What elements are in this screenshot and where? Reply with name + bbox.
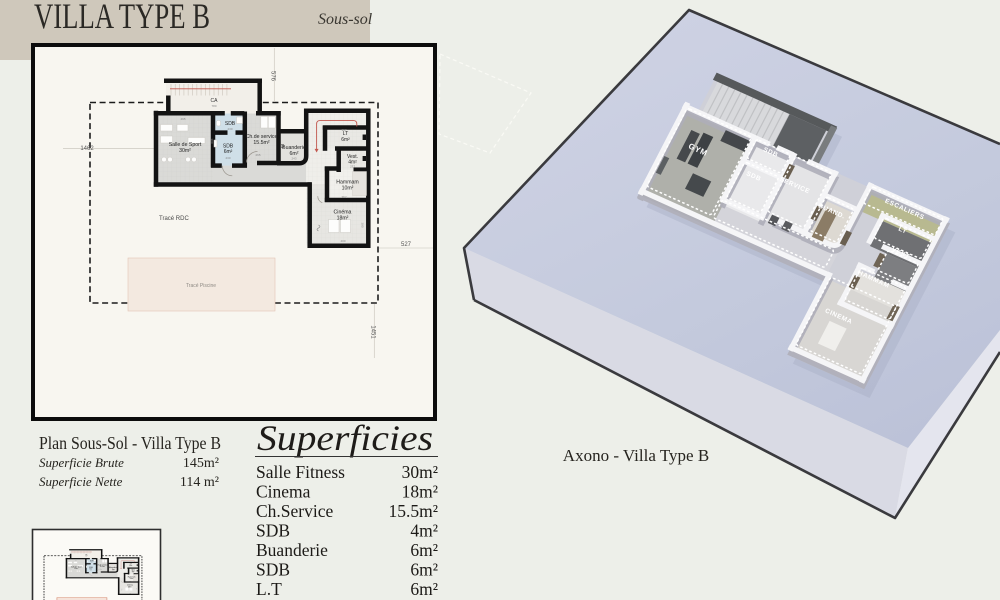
svg-text:VILLA TYPE B: VILLA TYPE B (34, 0, 210, 36)
svg-text:527: 527 (401, 242, 412, 248)
svg-text:400: 400 (340, 239, 345, 243)
svg-text:Superficies: Superficies (257, 418, 433, 458)
svg-text:1451: 1451 (370, 325, 376, 339)
svg-text:18m²: 18m² (402, 482, 438, 502)
svg-text:6m²: 6m² (341, 137, 350, 143)
svg-text:362: 362 (341, 195, 346, 199)
svg-text:SDB: SDB (256, 521, 290, 541)
svg-text:6m²: 6m² (410, 540, 438, 560)
svg-text:237: 237 (350, 164, 355, 168)
svg-text:15.5m²: 15.5m² (253, 140, 269, 146)
svg-text:Tracé Piscine: Tracé Piscine (186, 283, 216, 289)
svg-text:15.5m²: 15.5m² (389, 501, 438, 521)
svg-text:576: 576 (270, 71, 276, 82)
svg-text:114 m²: 114 m² (180, 475, 219, 490)
svg-text:397: 397 (341, 128, 346, 132)
svg-text:4m²: 4m² (410, 521, 438, 541)
svg-text:10m²: 10m² (342, 186, 354, 192)
svg-text:300: 300 (210, 138, 214, 143)
svg-text:243: 243 (291, 157, 296, 161)
svg-text:Axono - Villa Type B: Axono - Villa Type B (563, 446, 709, 465)
svg-text:18m²: 18m² (337, 216, 349, 222)
svg-text:Tracé RDC: Tracé RDC (159, 216, 189, 222)
svg-text:Sous-sol: Sous-sol (318, 11, 373, 28)
svg-text:6m²: 6m² (224, 149, 233, 155)
svg-text:390: 390 (361, 222, 365, 227)
svg-text:780: 780 (211, 104, 216, 108)
svg-text:230: 230 (225, 156, 230, 160)
svg-text:495: 495 (180, 117, 185, 121)
svg-text:30m²: 30m² (179, 148, 191, 154)
svg-text:Buanderie: Buanderie (256, 540, 328, 560)
svg-text:6m²: 6m² (410, 560, 438, 580)
svg-text:SDB: SDB (256, 560, 290, 580)
svg-text:Superficie Brute: Superficie Brute (39, 455, 124, 470)
svg-text:Salle Fitness: Salle Fitness (256, 462, 345, 482)
svg-text:6m²: 6m² (410, 579, 438, 599)
svg-text:30m²: 30m² (402, 462, 438, 482)
svg-text:L.T: L.T (256, 579, 282, 599)
svg-text:Superficie Nette: Superficie Nette (39, 474, 123, 489)
svg-text:Cinema: Cinema (256, 482, 311, 502)
svg-text:1462: 1462 (80, 146, 94, 152)
svg-text:Plan Sous-Sol - Villa Type B: Plan Sous-Sol - Villa Type B (39, 433, 221, 453)
svg-text:145m²: 145m² (183, 456, 219, 471)
svg-text:265: 265 (255, 153, 260, 157)
svg-text:230: 230 (227, 127, 232, 131)
svg-text:Ch.Service: Ch.Service (256, 501, 334, 521)
